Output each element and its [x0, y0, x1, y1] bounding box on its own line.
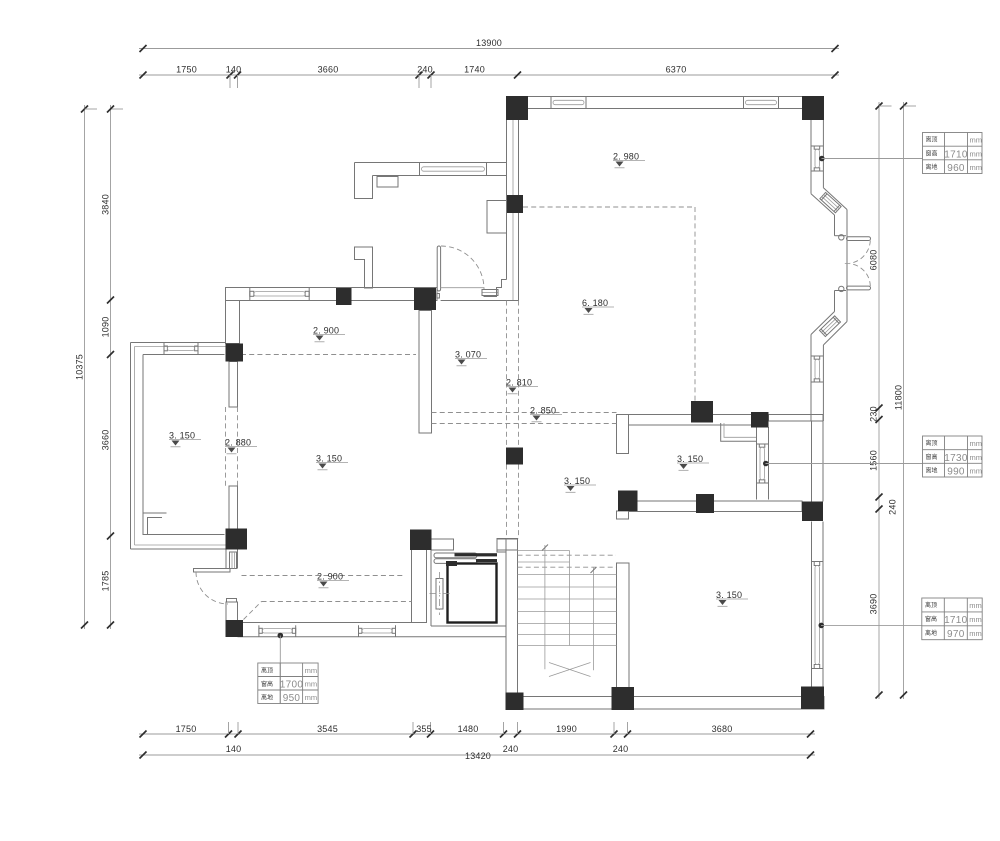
svg-text:950: 950 [283, 693, 301, 704]
svg-text:2. 980: 2. 980 [613, 152, 639, 162]
svg-text:6370: 6370 [666, 65, 687, 75]
svg-text:3840: 3840 [101, 194, 111, 215]
svg-text:6. 180: 6. 180 [582, 298, 608, 308]
svg-text:3. 150: 3. 150 [716, 590, 742, 600]
svg-text:10375: 10375 [75, 354, 85, 380]
svg-text:960: 960 [947, 163, 965, 174]
svg-text:1090: 1090 [101, 317, 111, 338]
svg-text:mm: mm [969, 629, 982, 638]
svg-text:2. 880: 2. 880 [225, 438, 251, 448]
svg-text:3. 150: 3. 150 [316, 454, 342, 464]
svg-text:3660: 3660 [318, 65, 339, 75]
svg-text:mm: mm [970, 439, 983, 448]
svg-text:240: 240 [613, 744, 629, 754]
svg-text:13900: 13900 [476, 38, 502, 48]
svg-text:1710: 1710 [944, 615, 968, 626]
svg-text:mm: mm [970, 163, 983, 172]
svg-text:mm: mm [970, 453, 983, 462]
svg-text:离顶: 离顶 [261, 667, 273, 675]
svg-text:3. 150: 3. 150 [564, 476, 590, 486]
svg-text:mm: mm [969, 615, 982, 624]
svg-text:窗高: 窗高 [261, 680, 273, 688]
svg-text:355: 355 [416, 724, 432, 734]
svg-text:离地: 离地 [926, 163, 938, 171]
svg-text:离顶: 离顶 [926, 439, 938, 447]
svg-text:mm: mm [970, 150, 983, 159]
svg-text:1785: 1785 [101, 571, 111, 592]
svg-text:2. 900: 2. 900 [313, 326, 339, 336]
svg-text:2. 850: 2. 850 [530, 406, 556, 416]
svg-text:3. 070: 3. 070 [455, 350, 481, 360]
svg-text:240: 240 [503, 744, 519, 754]
svg-text:mm: mm [305, 680, 318, 689]
svg-text:990: 990 [947, 467, 965, 478]
svg-text:1750: 1750 [176, 65, 197, 75]
svg-text:窗高: 窗高 [925, 615, 937, 623]
svg-text:13420: 13420 [465, 751, 491, 761]
svg-text:1480: 1480 [458, 724, 479, 734]
svg-text:3. 150: 3. 150 [677, 454, 703, 464]
svg-text:1560: 1560 [869, 450, 879, 471]
svg-text:3680: 3680 [712, 724, 733, 734]
svg-text:240: 240 [888, 499, 898, 515]
svg-text:离地: 离地 [261, 694, 273, 702]
svg-text:240: 240 [417, 65, 433, 75]
svg-text:窗高: 窗高 [926, 150, 938, 158]
svg-text:3690: 3690 [869, 594, 879, 615]
svg-text:140: 140 [226, 744, 242, 754]
svg-text:970: 970 [947, 629, 965, 640]
svg-text:mm: mm [969, 601, 982, 610]
svg-text:3545: 3545 [317, 724, 338, 734]
svg-text:窗高: 窗高 [926, 453, 938, 461]
svg-text:230: 230 [869, 406, 879, 422]
svg-text:11800: 11800 [894, 385, 904, 410]
svg-text:1750: 1750 [176, 724, 197, 734]
svg-text:1700: 1700 [280, 680, 304, 691]
svg-text:1730: 1730 [944, 453, 968, 464]
svg-text:离顶: 离顶 [926, 136, 938, 144]
svg-text:1740: 1740 [464, 65, 485, 75]
svg-text:mm: mm [305, 693, 318, 702]
svg-text:mm: mm [305, 666, 318, 675]
svg-text:离顶: 离顶 [925, 601, 937, 609]
svg-text:1710: 1710 [944, 150, 968, 161]
svg-text:离地: 离地 [926, 467, 938, 475]
svg-text:mm: mm [970, 467, 983, 476]
svg-text:140: 140 [226, 65, 242, 75]
svg-text:6080: 6080 [869, 250, 879, 271]
svg-text:3660: 3660 [101, 430, 111, 451]
svg-text:3. 150: 3. 150 [169, 431, 195, 441]
svg-text:2. 810: 2. 810 [506, 378, 532, 388]
svg-text:mm: mm [970, 136, 983, 145]
svg-text:离地: 离地 [925, 629, 937, 637]
svg-text:2. 900: 2. 900 [317, 572, 343, 582]
svg-text:1990: 1990 [556, 724, 577, 734]
